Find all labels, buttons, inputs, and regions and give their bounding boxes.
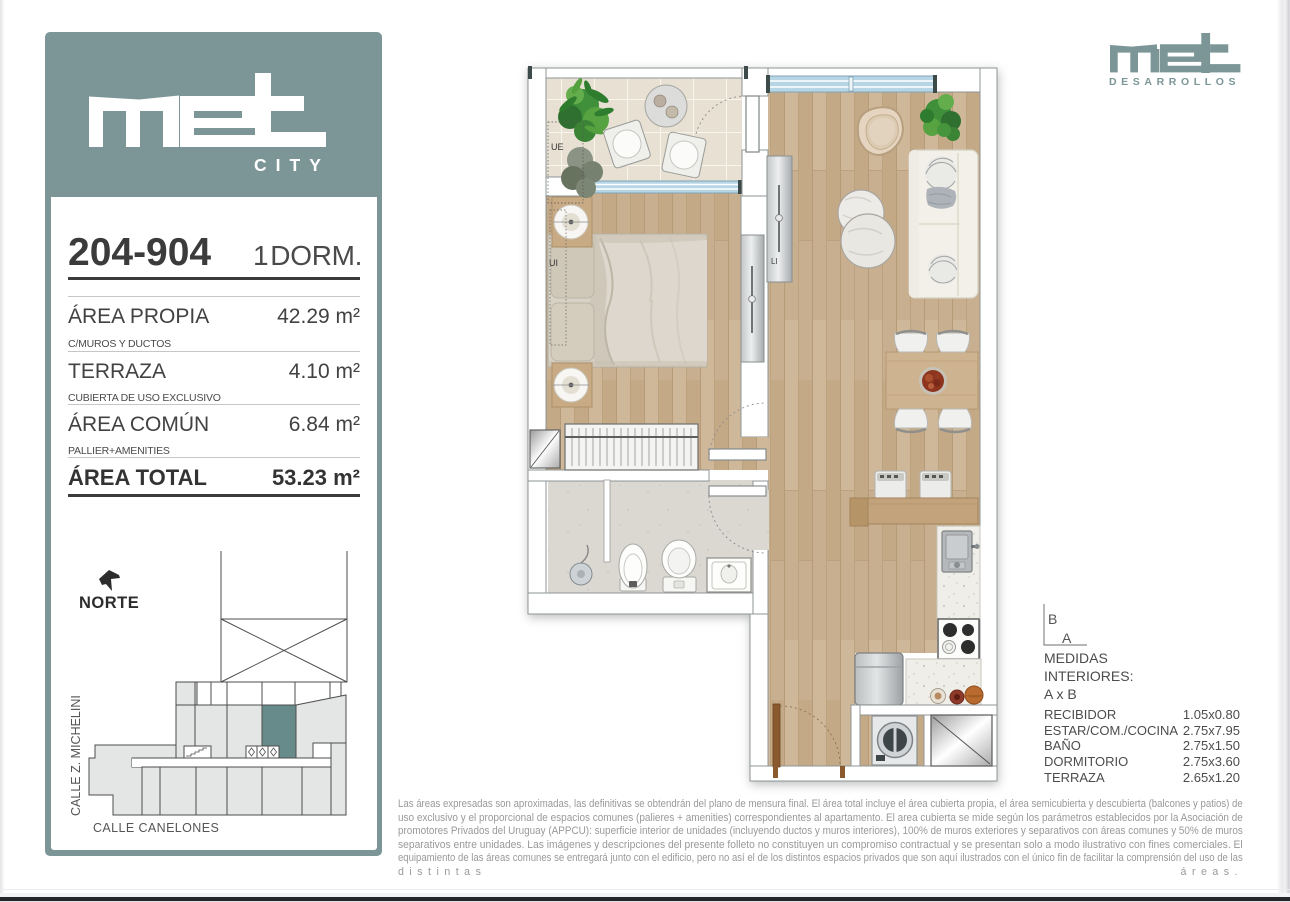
svg-text:DESARROLLOS: DESARROLLOS xyxy=(1109,76,1240,88)
svg-text:LI: LI xyxy=(771,257,778,266)
svg-text:CITY: CITY xyxy=(254,155,330,175)
svg-text:UE: UE xyxy=(551,142,564,152)
svg-text:B: B xyxy=(1048,611,1057,627)
svg-text:A: A xyxy=(1062,630,1072,646)
